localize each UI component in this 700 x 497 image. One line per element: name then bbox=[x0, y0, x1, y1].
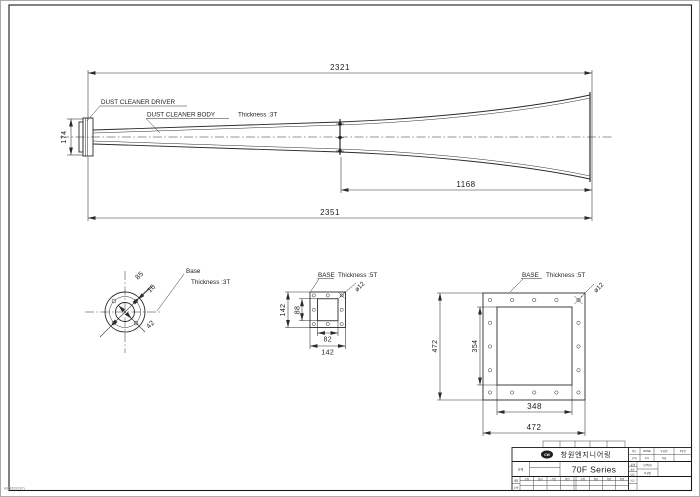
col-header: 공정 bbox=[580, 477, 585, 481]
company-logo-text: CW bbox=[544, 453, 551, 457]
body-label: DUST CLEANER BODY bbox=[147, 112, 216, 119]
large-flange-title: BASE bbox=[522, 272, 539, 279]
info-unit-value: mm bbox=[645, 457, 649, 460]
dim-top-length-text: 2321 bbox=[330, 63, 350, 72]
small-flange-thickness: Thickness :5T bbox=[338, 272, 377, 279]
drawing-sheet: A3(420X297) bbox=[0, 0, 700, 497]
round-base-thickness: Thickness :3T bbox=[191, 279, 230, 286]
sheet-edge bbox=[1, 1, 700, 497]
large-flange-outer-w: 472 bbox=[527, 423, 542, 432]
material-label: 재질 bbox=[514, 478, 519, 482]
approval-check: 검도 bbox=[630, 472, 635, 476]
small-flange-title: BASE bbox=[318, 272, 335, 279]
info-unit-label: 단위 bbox=[632, 456, 637, 460]
col-header: 일자 bbox=[594, 477, 599, 481]
quantity-label: 수량 bbox=[514, 485, 519, 489]
company-name: 창원엔지니어링 bbox=[561, 450, 612, 459]
paper-size-label: A3(420X297) bbox=[4, 487, 25, 491]
info-scale-value: NONE bbox=[643, 450, 651, 453]
drawing-canvas: A3(420X297) bbox=[0, 0, 700, 497]
small-flange-outer-w: 142 bbox=[321, 350, 334, 357]
col-header: 일자 bbox=[538, 477, 543, 481]
round-base-title: Base bbox=[186, 268, 201, 275]
body-thickness-label: Thickness :3T bbox=[238, 112, 277, 119]
large-flange-thickness: Thickness :5T bbox=[546, 272, 585, 279]
col-header: 작업 bbox=[551, 477, 556, 481]
col-header: 작업 bbox=[607, 477, 612, 481]
small-flange-inner-h: 88 bbox=[295, 306, 302, 315]
large-flange-outer-h: 472 bbox=[432, 340, 439, 353]
dim-total-length-text: 2351 bbox=[320, 208, 340, 217]
info-scale-label: 척도 bbox=[632, 449, 637, 453]
small-flange-outer-h: 142 bbox=[280, 304, 287, 317]
dwg-no-label: 도면번호 bbox=[643, 463, 653, 467]
info-projection-label: 투상법 bbox=[661, 449, 668, 453]
note-label: 비고 bbox=[630, 479, 635, 483]
col-header: 확인 bbox=[565, 477, 570, 481]
approval-draft: 제도 bbox=[630, 467, 635, 471]
col-header: 공정 bbox=[524, 477, 529, 481]
driver-label: DUST CLEANER DRIVER bbox=[101, 99, 176, 106]
spec-label: 규격 bbox=[518, 467, 524, 472]
info-author-label: 작성 bbox=[662, 456, 667, 460]
dim-driver-height-text: 174 bbox=[61, 131, 68, 144]
large-flange-inner-h: 354 bbox=[472, 340, 479, 353]
dim-horn-length-text: 1168 bbox=[456, 180, 475, 189]
large-flange-inner-w: 348 bbox=[527, 402, 542, 411]
approval-design: 설계 bbox=[630, 462, 635, 466]
date-label: 작성일 bbox=[644, 471, 652, 475]
series-title: 70F Series bbox=[572, 465, 617, 475]
small-flange-inner-w: 82 bbox=[323, 337, 332, 344]
col-header: 확인 bbox=[620, 477, 625, 481]
info-projection-value: 3각법 bbox=[680, 449, 686, 453]
